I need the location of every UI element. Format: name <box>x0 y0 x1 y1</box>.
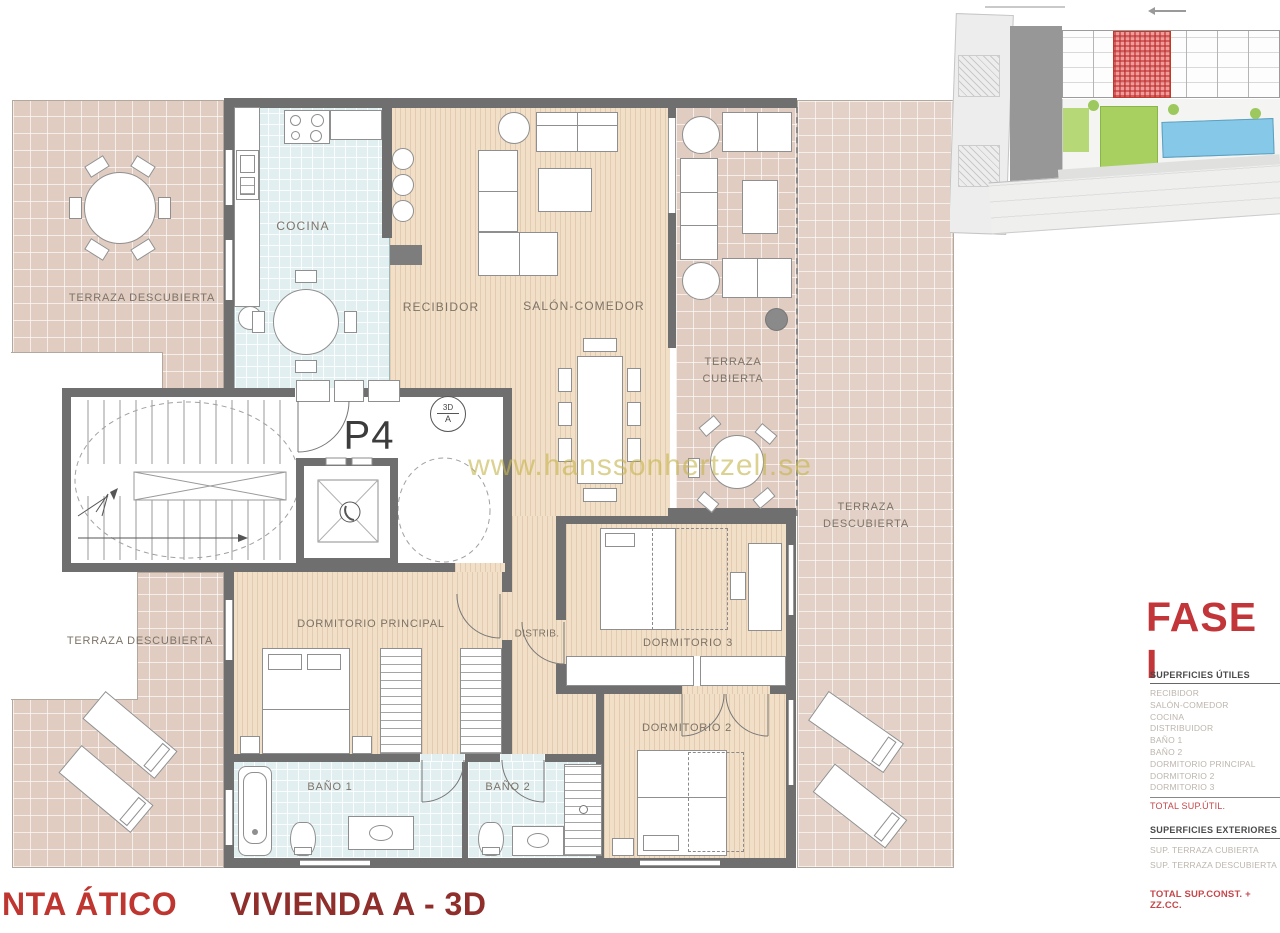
chair <box>158 197 171 219</box>
dorm-ppal-door-arc <box>455 592 503 640</box>
legend-heading-exteriores: SUPERFICIES EXTERIORES <box>1150 825 1280 839</box>
label-terraza-cubierta: TERRAZA CUBIERTA <box>690 354 776 388</box>
window-dorm-ppal-1 <box>225 600 233 660</box>
label-dormitorio-3: DORMITORIO 3 <box>643 637 733 649</box>
plant <box>392 174 414 196</box>
view-3d-marker-top: 3D <box>437 403 459 414</box>
label-dormitorio-2: DORMITORIO 2 <box>642 722 732 734</box>
label-bano-1: BAÑO 1 <box>307 781 352 793</box>
window-bottom-2 <box>640 860 720 866</box>
nightstand <box>240 736 260 754</box>
side-table <box>682 262 720 300</box>
toilet <box>290 822 316 856</box>
chair <box>583 338 617 352</box>
wardrobe <box>380 648 422 754</box>
bathtub <box>238 766 272 856</box>
legend-item: DORMITORIO PRINCIPAL <box>1150 759 1280 771</box>
legend-item: DORMITORIO 2 <box>1150 771 1280 783</box>
outdoor-sofa <box>680 158 718 260</box>
bano1-door-arc <box>420 758 466 804</box>
double-bed <box>262 648 350 754</box>
terrace-top-left-floor <box>12 100 224 390</box>
sofa <box>536 112 618 152</box>
desk-chair <box>730 572 746 600</box>
wardrobe <box>460 648 502 754</box>
site-parking <box>958 55 1000 97</box>
site-dark-block <box>1010 26 1062 186</box>
sideboard <box>390 245 422 265</box>
site-plan <box>950 0 1280 235</box>
coffee-table <box>538 168 592 212</box>
opening-salon-cubierta <box>668 118 676 213</box>
site-highlighted-unit <box>1113 31 1171 98</box>
side-table <box>498 112 530 144</box>
unit-label: P4 <box>344 414 395 459</box>
chair <box>295 360 317 373</box>
optional-bed-dashed <box>652 528 728 630</box>
view-3d-marker: 3D A <box>430 396 466 432</box>
label-bano-2: BAÑO 2 <box>485 781 530 793</box>
sink-counter <box>348 816 414 850</box>
label-terraza-top-left: TERRAZA DESCUBIERTA <box>69 292 215 304</box>
stove <box>284 110 330 144</box>
window-bottom-1 <box>300 860 370 866</box>
legend-heading-utiles: SUPERFICIES ÚTILES <box>1150 670 1280 684</box>
chair <box>627 402 641 426</box>
nightstand <box>352 736 372 754</box>
kitchen-counter <box>234 107 260 307</box>
site-parking <box>958 145 1000 187</box>
closet <box>700 656 786 686</box>
site-road-top-line <box>985 6 1065 8</box>
window-dorm2 <box>788 700 794 785</box>
site-road-arrow <box>1152 10 1186 12</box>
chair <box>344 311 357 333</box>
legend-item: RECIBIDOR <box>1150 688 1280 700</box>
label-cocina: COCINA <box>276 219 329 233</box>
planter <box>765 308 788 331</box>
window-cocina-2 <box>225 240 233 300</box>
wall-dorm3-left <box>556 516 566 694</box>
door-gap-dormppal <box>502 592 512 640</box>
plant <box>392 200 414 222</box>
wall-top-cubierta <box>700 98 797 108</box>
plant <box>392 148 414 170</box>
chair <box>558 368 572 392</box>
toilet <box>478 822 504 856</box>
legend-item: BAÑO 1 <box>1150 735 1280 747</box>
view-3d-marker-bottom: A <box>445 414 451 425</box>
chair <box>627 368 641 392</box>
side-table <box>682 116 720 154</box>
site-tree <box>1088 100 1099 111</box>
site-garden <box>1100 106 1158 168</box>
chair <box>295 270 317 283</box>
label-terraza-bottom-left: TERRAZA DESCUBIERTA <box>67 635 213 647</box>
label-terraza-right: TERRAZA DESCUBIERTA <box>810 499 922 533</box>
site-garden <box>1063 108 1089 152</box>
wall-top-main <box>224 98 700 108</box>
site-tree <box>1250 108 1261 119</box>
legend-total-const: TOTAL SUP.CONST. + ZZ.CC. <box>1150 889 1280 911</box>
chair <box>69 197 82 219</box>
unit-title: VIVIENDA A - 3D <box>230 886 486 923</box>
sink-counter <box>512 826 564 856</box>
terrace-dining-table <box>84 172 156 244</box>
closet <box>566 656 694 686</box>
dorm3-door-arc <box>520 620 566 666</box>
legend-item: BAÑO 2 <box>1150 747 1280 759</box>
label-dormitorio-principal: DORMITORIO PRINCIPAL <box>297 618 445 630</box>
legend-item: SUP. TERRAZA CUBIERTA <box>1150 843 1280 858</box>
chair <box>558 402 572 426</box>
kitchen-table <box>273 289 339 355</box>
optional-bed-dashed <box>688 752 744 852</box>
legend-item: DORMITORIO 3 <box>1150 782 1280 794</box>
sofa-l-shaped <box>478 232 558 276</box>
legend-total-util: TOTAL SUP.ÚTIL. <box>1150 797 1280 811</box>
window-cocina-1 <box>225 150 233 205</box>
floor-plan-page: { "colors": { "wall_gray": "#6f6f6f", "t… <box>0 0 1280 933</box>
coffee-table <box>742 180 778 234</box>
legend-item: SALÓN-COMEDOR <box>1150 700 1280 712</box>
desk <box>748 543 782 631</box>
chair <box>583 488 617 502</box>
legend-item: SUP. TERRAZA DESCUBIERTA <box>1150 858 1280 873</box>
kitchen-sink <box>236 150 259 200</box>
site-building-row <box>1062 30 1280 98</box>
window-dorm-ppal-2 <box>225 790 233 845</box>
terrace-top-left-notch <box>11 352 163 391</box>
outdoor-sofa <box>722 112 792 152</box>
wall-banos-top <box>224 754 604 762</box>
chair <box>252 311 265 333</box>
legend-item: COCINA <box>1150 712 1280 724</box>
site-pool <box>1161 118 1274 158</box>
site-road-arrow <box>1148 7 1155 15</box>
shower <box>564 764 602 856</box>
wall-cocina-recibidor <box>382 98 392 238</box>
label-recibidor: RECIBIDOR <box>403 300 480 314</box>
bench <box>612 838 634 856</box>
label-salon-comedor: SALÓN-COMEDOR <box>523 299 645 313</box>
window-dorm3 <box>788 545 794 615</box>
kitchen-counter-top <box>330 110 382 140</box>
outdoor-sofa <box>722 258 792 298</box>
legend-item: DISTRIBUIDOR <box>1150 723 1280 735</box>
wall-dorm3-top <box>556 516 796 524</box>
surface-legend: SUPERFICIES ÚTILES RECIBIDOR SALÓN-COMED… <box>1150 670 1280 911</box>
site-tree <box>1168 104 1179 115</box>
label-distribuidor: DISTRIB. <box>515 629 560 640</box>
watermark: www.hanssonhertzell.se <box>468 449 812 483</box>
plan-title: NTA ÁTICO <box>2 886 177 923</box>
